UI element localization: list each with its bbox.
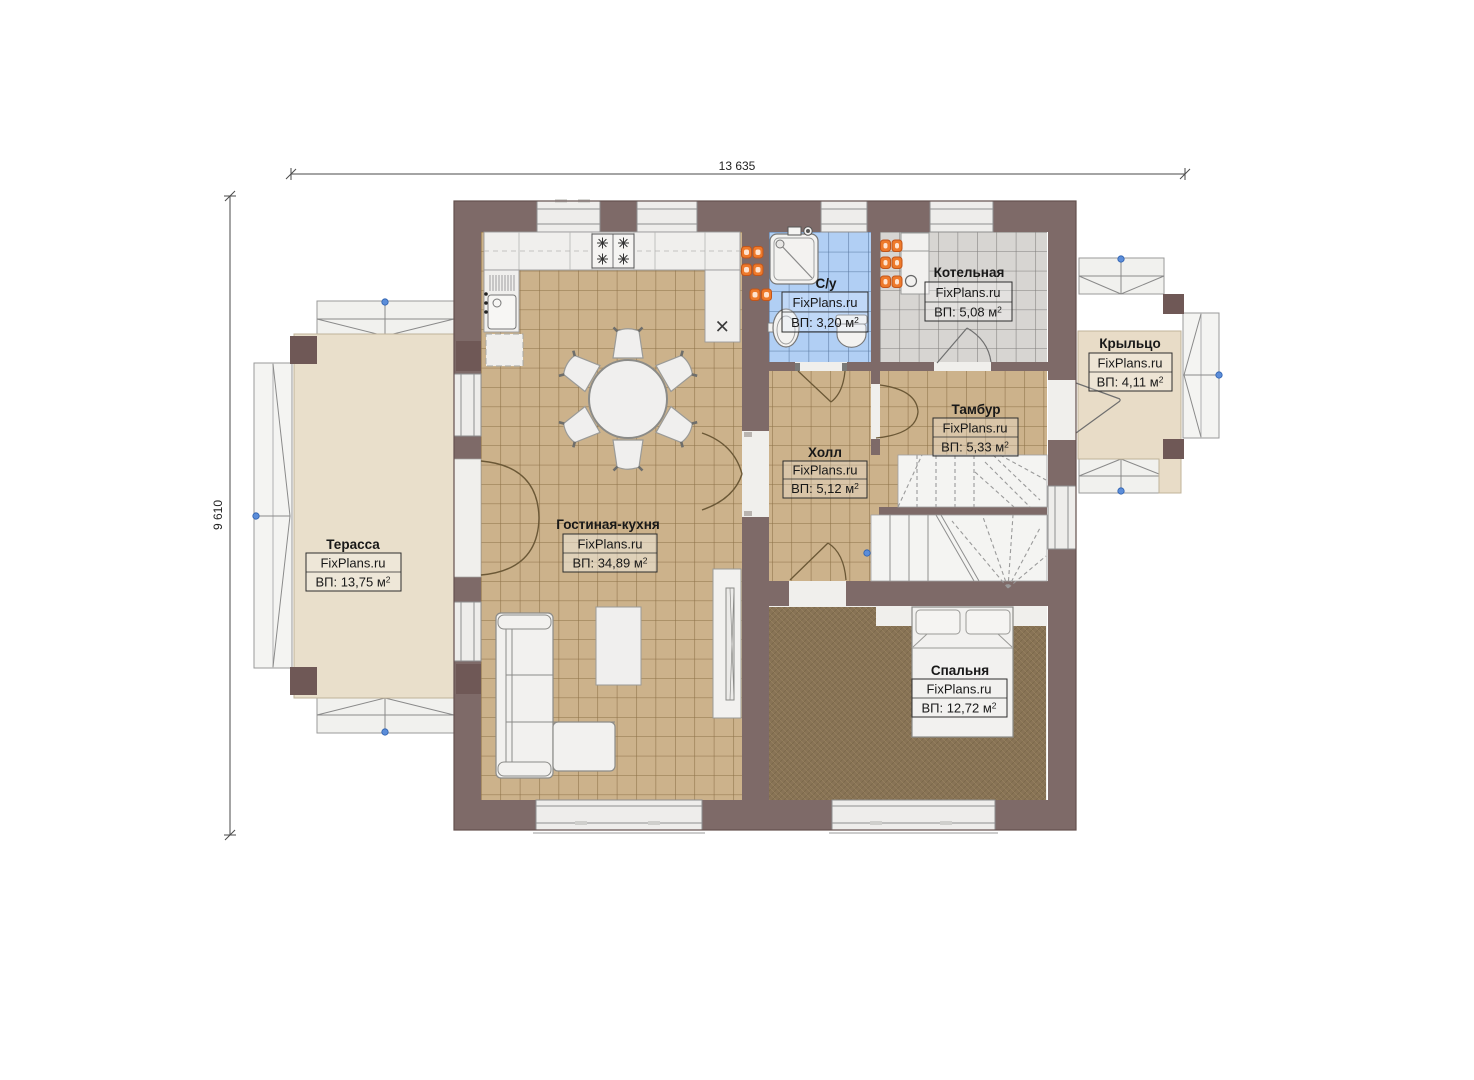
- svg-text:ВП: 12,72 м2: ВП: 12,72 м2: [921, 701, 996, 716]
- svg-text:ВП: 13,75 м2: ВП: 13,75 м2: [315, 575, 390, 590]
- svg-text:Терасса: Терасса: [326, 537, 380, 552]
- svg-text:Тамбур: Тамбур: [952, 402, 1001, 417]
- svg-text:ВП: 5,12 м2: ВП: 5,12 м2: [791, 481, 859, 496]
- svg-text:Котельная: Котельная: [934, 265, 1005, 280]
- svg-text:FixPlans.ru: FixPlans.ru: [935, 285, 1000, 300]
- svg-text:FixPlans.ru: FixPlans.ru: [942, 421, 1007, 436]
- svg-text:Гостиная-кухня: Гостиная-кухня: [556, 517, 659, 532]
- svg-text:ВП: 5,08 м2: ВП: 5,08 м2: [934, 305, 1002, 320]
- svg-text:FixPlans.ru: FixPlans.ru: [792, 463, 857, 478]
- svg-text:9 610: 9 610: [211, 500, 225, 530]
- svg-text:13 635: 13 635: [719, 159, 756, 173]
- svg-text:FixPlans.ru: FixPlans.ru: [577, 537, 642, 552]
- svg-text:FixPlans.ru: FixPlans.ru: [1097, 356, 1162, 371]
- svg-text:ВП: 34,89 м2: ВП: 34,89 м2: [572, 556, 647, 571]
- svg-text:FixPlans.ru: FixPlans.ru: [926, 682, 991, 697]
- svg-text:ВП: 5,33 м2: ВП: 5,33 м2: [941, 440, 1009, 455]
- svg-text:С/у: С/у: [815, 276, 837, 291]
- svg-text:Спальня: Спальня: [931, 663, 989, 678]
- svg-text:ВП: 4,11 м2: ВП: 4,11 м2: [1097, 375, 1164, 390]
- svg-text:Холл: Холл: [808, 445, 842, 460]
- svg-text:FixPlans.ru: FixPlans.ru: [320, 556, 385, 571]
- svg-text:FixPlans.ru: FixPlans.ru: [792, 295, 857, 310]
- svg-text:Крыльцо: Крыльцо: [1099, 336, 1160, 351]
- svg-text:ВП: 3,20 м2: ВП: 3,20 м2: [791, 315, 859, 330]
